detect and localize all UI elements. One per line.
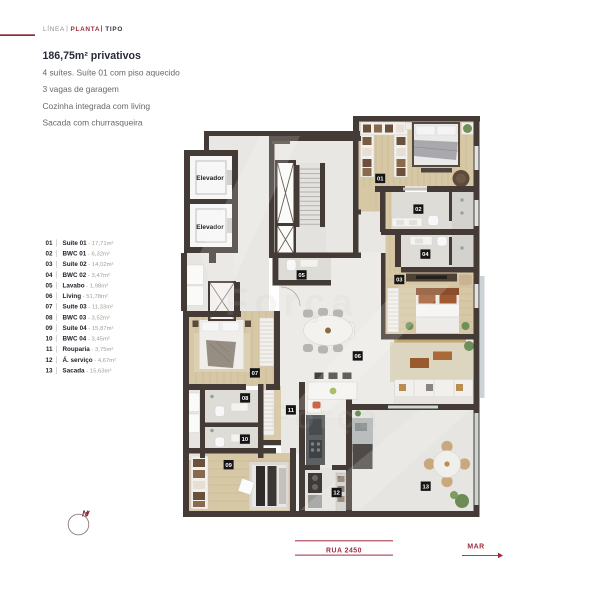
svg-text:Lavabo - 1,98m²: Lavabo - 1,98m² — [63, 282, 109, 289]
svg-text:03: 03 — [45, 261, 53, 268]
svg-text:08: 08 — [242, 396, 249, 402]
svg-text:10: 10 — [242, 437, 248, 443]
svg-text:Suíte 02 - 14,02m²: Suíte 02 - 14,02m² — [63, 261, 114, 268]
svg-text:04: 04 — [45, 272, 53, 279]
svg-text:Sacada com churrasqueira: Sacada com churrasqueira — [43, 117, 143, 127]
svg-text:01: 01 — [45, 240, 53, 247]
svg-text:02: 02 — [415, 207, 421, 213]
svg-text:13: 13 — [422, 484, 429, 490]
svg-text:186,75m² privativos: 186,75m² privativos — [43, 50, 141, 62]
svg-text:Força: Força — [270, 399, 382, 435]
svg-text:Sacada - 15,63m²: Sacada - 15,63m² — [63, 368, 112, 375]
svg-text:05: 05 — [298, 273, 305, 279]
svg-text:11: 11 — [46, 346, 53, 353]
svg-text:Á. serviço - 4,67m²: Á. serviço - 4,67m² — [63, 355, 117, 364]
svg-text:BWC 01 - 6,32m²: BWC 01 - 6,32m² — [63, 251, 110, 258]
svg-text:09: 09 — [45, 325, 53, 332]
svg-text:13: 13 — [45, 368, 53, 375]
svg-text:12: 12 — [333, 491, 339, 497]
svg-text:07: 07 — [45, 304, 53, 311]
svg-text:08: 08 — [45, 314, 53, 321]
svg-text:11: 11 — [288, 408, 295, 414]
svg-text:03: 03 — [396, 278, 403, 284]
svg-text:BWC 04 - 3,45m²: BWC 04 - 3,45m² — [63, 336, 110, 343]
svg-text:Cozinha integrada com living: Cozinha integrada com living — [43, 101, 151, 111]
svg-text:Suíte 04 - 15,87m²: Suíte 04 - 15,87m² — [63, 325, 114, 332]
svg-text:4 suítes. Suíte 01 com piso aq: 4 suítes. Suíte 01 com piso aquecido — [43, 68, 181, 78]
svg-text:Rouparia - 3,75m²: Rouparia - 3,75m² — [63, 346, 114, 353]
svg-text:3 vagas de garagem: 3 vagas de garagem — [43, 84, 119, 94]
svg-text:12: 12 — [45, 357, 53, 364]
svg-text:09: 09 — [225, 463, 232, 469]
svg-text:01: 01 — [377, 177, 384, 183]
svg-text:PLANTA: PLANTA — [71, 26, 101, 33]
svg-text:Suíte 03 - 11,33m²: Suíte 03 - 11,33m² — [63, 304, 114, 311]
svg-text:LÍNEA: LÍNEA — [43, 24, 65, 33]
svg-text:02: 02 — [45, 251, 53, 258]
svg-text:TIPO: TIPO — [105, 26, 123, 33]
svg-text:BWC 02 - 3,47m²: BWC 02 - 3,47m² — [63, 272, 110, 279]
svg-text:BWC 03 - 3,52m²: BWC 03 - 3,52m² — [63, 314, 110, 321]
svg-text:RUA 2450: RUA 2450 — [326, 547, 362, 554]
svg-text:07: 07 — [252, 371, 258, 377]
svg-text:Living - 51,78m²: Living - 51,78m² — [63, 293, 108, 300]
svg-text:05: 05 — [45, 282, 53, 289]
svg-text:Suíte 01 - 17,71m²: Suíte 01 - 17,71m² — [63, 240, 114, 247]
svg-text:04: 04 — [422, 252, 429, 258]
svg-text:06: 06 — [354, 354, 361, 360]
svg-text:MAR: MAR — [467, 543, 484, 550]
svg-text:Elevador: Elevador — [196, 175, 224, 182]
svg-text:06: 06 — [45, 293, 53, 300]
svg-text:10: 10 — [45, 336, 53, 343]
svg-text:Força: Força — [225, 282, 358, 324]
